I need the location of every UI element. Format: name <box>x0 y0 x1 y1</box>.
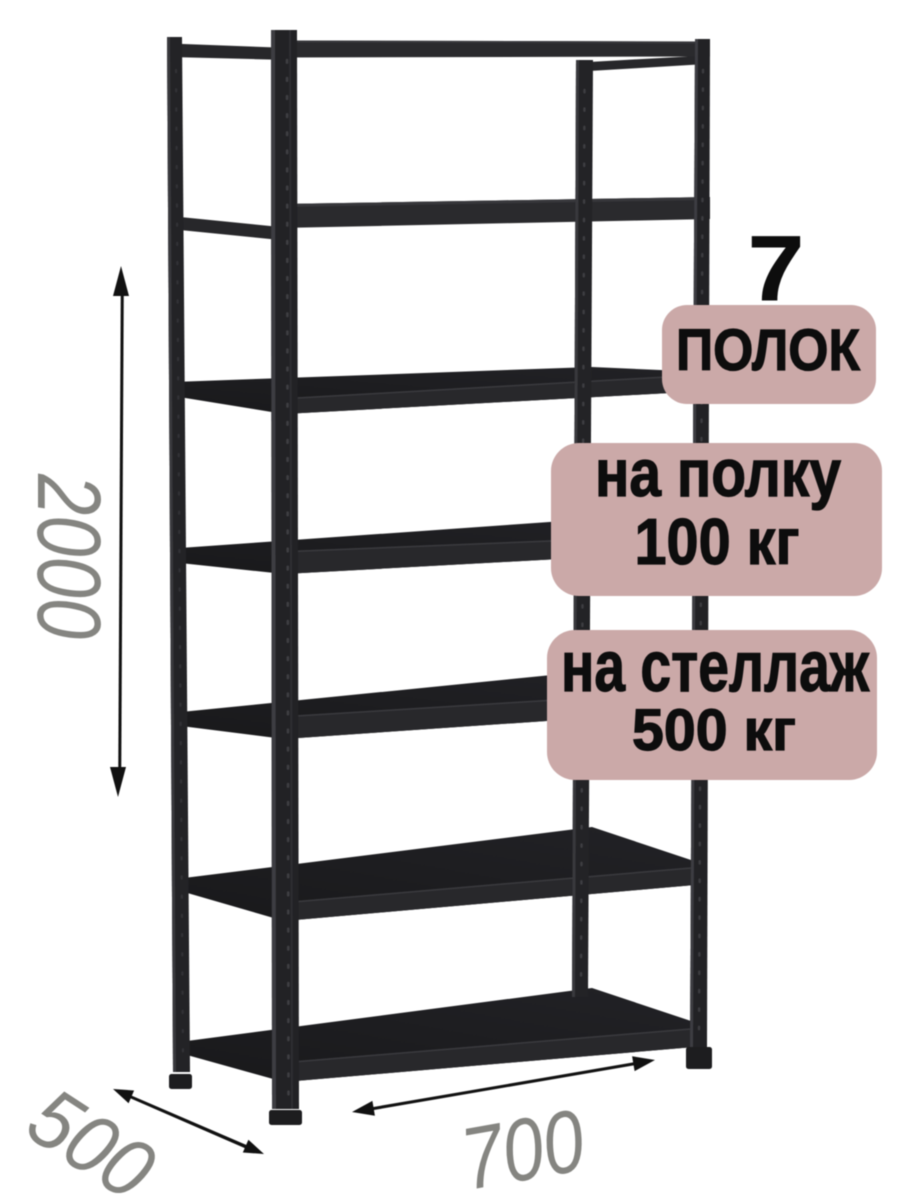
svg-text:500 кг: 500 кг <box>632 698 796 763</box>
svg-text:на полку: на полку <box>595 436 841 511</box>
svg-text:ПОЛОК: ПОЛОК <box>676 318 861 383</box>
svg-text:на стеллаж: на стеллаж <box>561 628 870 707</box>
svg-text:2000: 2000 <box>18 473 118 639</box>
svg-text:100 кг: 100 кг <box>635 505 800 578</box>
svg-text:7: 7 <box>748 218 804 320</box>
